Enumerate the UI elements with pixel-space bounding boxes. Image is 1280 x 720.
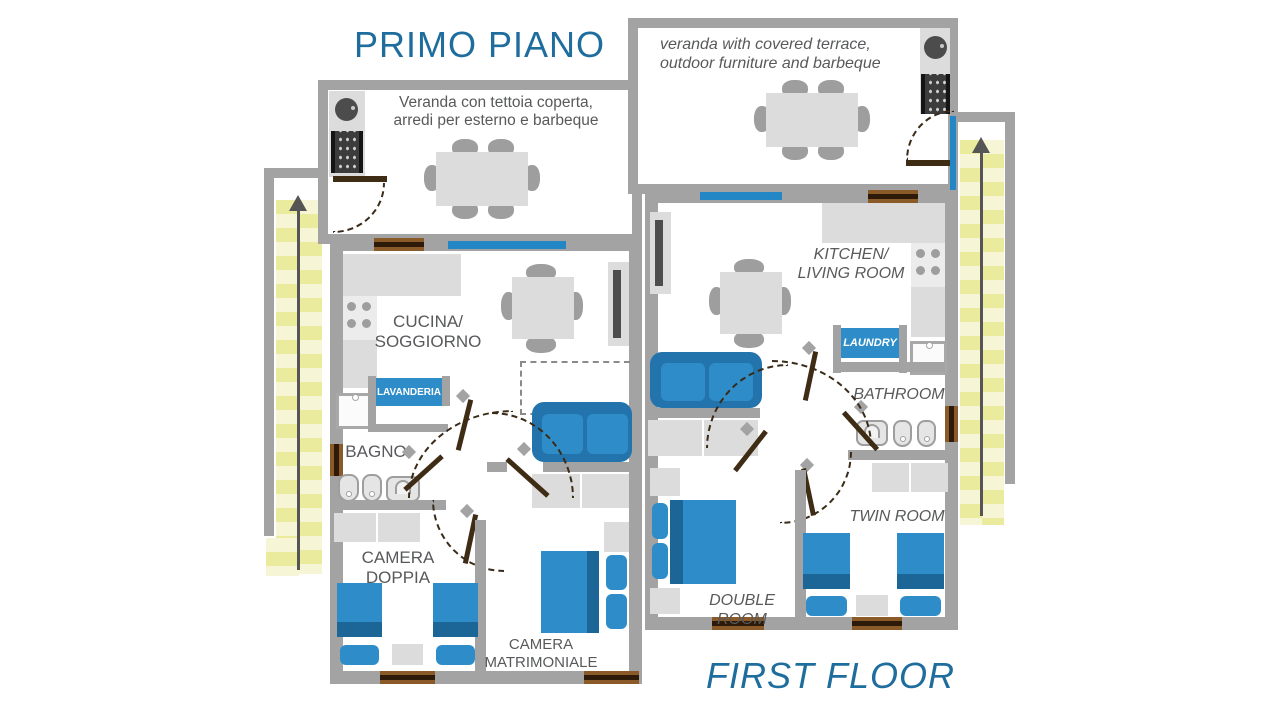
bed-blanket	[897, 574, 944, 589]
dining-table	[512, 277, 574, 339]
bed-pillow	[806, 596, 847, 616]
window-segment	[852, 617, 902, 630]
dresser	[650, 588, 680, 614]
bed-blanket	[337, 622, 382, 637]
barbeque-icon	[331, 131, 363, 173]
bed-pillow	[606, 594, 627, 629]
floor-plan-canvas: PRIMO PIANO FIRST FLOOR Veranda con tett…	[0, 0, 1280, 720]
up-arrow-icon	[297, 210, 300, 570]
bed-blanket	[433, 622, 478, 637]
wall	[442, 376, 450, 406]
window-segment	[380, 671, 435, 684]
window-segment	[950, 116, 956, 190]
dining-table	[720, 272, 782, 334]
wardrobe	[648, 420, 702, 456]
nightstand	[392, 644, 423, 665]
wall	[368, 424, 448, 432]
tv-icon	[655, 220, 663, 286]
sink-icon	[924, 36, 947, 59]
wall	[330, 500, 446, 510]
bed-pillow	[900, 596, 941, 616]
dresser	[911, 463, 948, 492]
bed-pillow	[652, 503, 668, 539]
stairs-steps	[276, 200, 299, 574]
bed-pillow	[606, 555, 627, 590]
stairs-steps	[960, 140, 982, 525]
window-segment	[448, 241, 566, 249]
door-leaf	[906, 160, 954, 166]
laundry-badge: LAUNDRY	[841, 328, 899, 358]
bed-blanket	[670, 500, 683, 584]
kitchen-counter	[822, 203, 945, 243]
stove-burner	[916, 249, 925, 258]
wall	[264, 168, 274, 536]
label-kitchen: KITCHEN/ LIVING ROOM	[790, 246, 912, 284]
outdoor-table	[436, 152, 528, 206]
nightstand	[856, 595, 888, 616]
bed-pillow	[652, 543, 668, 579]
outdoor-table	[766, 93, 858, 147]
label-twin-room: TWIN ROOM	[843, 508, 951, 527]
tv-icon	[613, 270, 621, 338]
stairs-steps	[266, 538, 299, 576]
bed-blanket	[587, 551, 599, 633]
stairs-steps	[982, 140, 1004, 525]
bidet-icon	[338, 474, 359, 502]
window-segment	[700, 192, 782, 200]
door-leaf	[333, 176, 387, 182]
label-double-room: CAMERA MATRIMONIALE	[480, 636, 602, 671]
wall	[1005, 112, 1015, 484]
barbeque-icon	[921, 74, 950, 114]
page-subtitle: FIRST FLOOR	[706, 655, 955, 697]
dresser	[604, 522, 629, 552]
bidet-icon	[917, 420, 936, 447]
bed-blanket	[803, 574, 850, 589]
veranda-note: Veranda con tettoia coperta, arredi per …	[385, 94, 607, 131]
wardrobe	[582, 474, 629, 508]
label-double-room: DOUBLE ROOM	[688, 592, 796, 630]
bed-pillow	[340, 645, 379, 665]
stairs-steps	[299, 200, 322, 574]
up-arrow-icon	[980, 152, 983, 516]
dresser	[334, 513, 376, 542]
sofa-cushion	[661, 363, 705, 401]
stove-burner	[362, 302, 371, 311]
stove-burner	[916, 266, 925, 275]
label-kitchen: CUCINA/ SOGGIORNO	[368, 312, 488, 352]
dresser	[378, 513, 420, 542]
bed-pillow	[436, 645, 475, 665]
window-segment	[868, 190, 918, 203]
up-arrow-icon	[972, 137, 990, 153]
sink-icon	[335, 98, 358, 121]
stove-burner	[931, 266, 940, 275]
stove-burner	[347, 302, 356, 311]
veranda-note: veranda with covered terrace, outdoor fu…	[660, 36, 896, 74]
toilet-icon	[893, 420, 912, 447]
dresser	[650, 468, 680, 496]
window-segment	[945, 406, 958, 442]
kitchen-counter	[911, 287, 945, 337]
kitchen-counter	[343, 254, 461, 296]
wall	[833, 362, 945, 372]
stove-burner	[931, 249, 940, 258]
laundry-badge: LAVANDERIA	[376, 378, 442, 406]
window-segment	[374, 238, 424, 251]
wall	[848, 450, 958, 460]
window-segment	[584, 671, 639, 684]
sofa-cushion	[587, 414, 628, 454]
toilet-icon	[362, 474, 382, 502]
page-title: PRIMO PIANO	[354, 24, 605, 66]
dresser	[872, 463, 909, 492]
stove-burner	[347, 319, 356, 328]
up-arrow-icon	[289, 195, 307, 211]
